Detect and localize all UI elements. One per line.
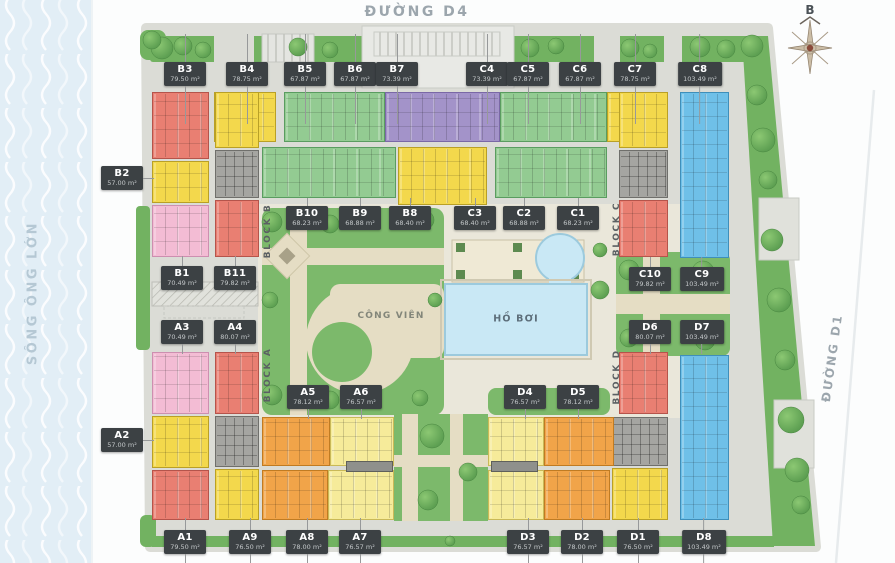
leader-line — [308, 409, 309, 419]
unit-area: 68.88 m² — [344, 219, 376, 227]
unit-code: C5 — [512, 64, 544, 75]
unit-area: 67.87 m² — [512, 75, 544, 83]
unit-code: B9 — [344, 208, 376, 219]
unit-label-c9[interactable]: C9103.49 m² — [680, 257, 724, 291]
unit-area: 70.49 m² — [166, 333, 198, 341]
unit-area: 80.07 m² — [219, 333, 251, 341]
leader-line — [361, 409, 362, 419]
leader-line — [355, 34, 356, 62]
unit-area: 68.88 m² — [508, 219, 540, 227]
leader-line — [700, 34, 701, 62]
leader-line — [247, 34, 248, 62]
unit-label-box: C1079.82 m² — [629, 267, 671, 291]
unit-label-b9[interactable]: B968.88 m² — [339, 198, 381, 230]
leader-line — [235, 256, 236, 266]
unit-label-b2[interactable]: B257.00 m² — [101, 166, 143, 190]
unit-label-box: A370.49 m² — [161, 320, 203, 344]
unit-code: B11 — [219, 268, 251, 279]
leader-line — [185, 518, 186, 530]
unit-label-d3[interactable]: D376.57 m² — [507, 518, 549, 563]
leader-line — [524, 198, 525, 206]
leader-line — [250, 518, 251, 530]
unit-area: 103.49 m² — [683, 75, 717, 83]
unit-label-b3[interactable]: B379.50 m² — [164, 34, 206, 124]
leader-line — [397, 86, 398, 124]
compass-north-label: B — [805, 4, 814, 16]
leader-line — [487, 34, 488, 62]
unit-area: 57.00 m² — [106, 179, 138, 187]
unit-code: B7 — [381, 64, 413, 75]
unit-area: 79.82 m² — [634, 280, 666, 288]
unit-label-box: D578.12 m² — [557, 385, 599, 409]
leader-line — [143, 440, 154, 441]
unit-code: A5 — [292, 387, 324, 398]
unit-label-c1[interactable]: C168.23 m² — [557, 198, 599, 230]
leader-line — [528, 518, 529, 530]
unit-label-d5[interactable]: D578.12 m² — [557, 385, 599, 419]
unit-code: B8 — [394, 208, 426, 219]
unit-code: B5 — [289, 64, 321, 75]
unit-code: D3 — [512, 532, 544, 543]
unit-code: C7 — [619, 64, 651, 75]
river-label: SÔNG ÔNG LỚN — [26, 221, 41, 365]
unit-area: 103.49 m² — [687, 543, 721, 551]
unit-label-d4[interactable]: D476.57 m² — [504, 385, 546, 419]
unit-label-box: B1068.23 m² — [286, 206, 328, 230]
leader-line — [704, 554, 705, 563]
unit-area: 76.57 m² — [509, 398, 541, 406]
leader-line — [410, 198, 411, 206]
unit-label-c10[interactable]: C1079.82 m² — [629, 257, 671, 291]
unit-code: D2 — [566, 532, 598, 543]
unit-label-d1[interactable]: D176.50 m² — [617, 518, 659, 563]
unit-area: 68.23 m² — [562, 219, 594, 227]
leader-line — [580, 86, 581, 124]
unit-label-box: B773.39 m² — [376, 62, 418, 86]
leader-line — [582, 518, 583, 530]
unit-label-box: B478.75 m² — [226, 62, 268, 86]
unit-area: 78.75 m² — [231, 75, 263, 83]
unit-area: 76.50 m² — [622, 543, 654, 551]
leader-line — [528, 86, 529, 124]
unit-label-d2[interactable]: D278.00 m² — [561, 518, 603, 563]
unit-code: D7 — [685, 322, 719, 333]
unit-label-box: B379.50 m² — [164, 62, 206, 86]
unit-label-c3[interactable]: C368.40 m² — [454, 198, 496, 230]
unit-area: 76.57 m² — [344, 543, 376, 551]
unit-label-box: D176.50 m² — [617, 530, 659, 554]
leader-line — [704, 518, 705, 530]
leader-line — [580, 34, 581, 62]
unit-area: 76.57 m² — [345, 398, 377, 406]
unit-area: 68.40 m² — [459, 219, 491, 227]
unit-label-box: B257.00 m² — [101, 166, 143, 190]
unit-code: D6 — [634, 322, 666, 333]
leader-line — [307, 198, 308, 206]
unit-code: B10 — [291, 208, 323, 219]
unit-area: 68.23 m² — [291, 219, 323, 227]
leader-line — [250, 554, 251, 563]
unit-label-box: B170.49 m² — [161, 266, 203, 290]
unit-area: 79.50 m² — [169, 75, 201, 83]
unit-label-box: D476.57 m² — [504, 385, 546, 409]
unit-code: A1 — [169, 532, 201, 543]
unit-label-b8[interactable]: B868.40 m² — [389, 198, 431, 230]
unit-label-box: C778.75 m² — [614, 62, 656, 86]
unit-label-a4[interactable]: A480.07 m² — [214, 320, 256, 354]
leader-line — [182, 344, 183, 354]
unit-area: 103.49 m² — [685, 333, 719, 341]
unit-area: 78.75 m² — [619, 75, 651, 83]
unit-code: A6 — [345, 387, 377, 398]
unit-label-a3[interactable]: A370.49 m² — [161, 320, 203, 354]
unit-label-box: C368.40 m² — [454, 206, 496, 230]
leader-line — [360, 554, 361, 563]
unit-label-box: D278.00 m² — [561, 530, 603, 554]
block-label-block-b: BLOCK B — [263, 204, 273, 259]
unit-code: A9 — [234, 532, 266, 543]
compass-icon — [784, 16, 836, 78]
unit-label-b1[interactable]: B170.49 m² — [161, 256, 203, 290]
unit-area: 79.50 m² — [169, 543, 201, 551]
leader-line — [307, 554, 308, 563]
unit-area: 103.49 m² — [685, 280, 719, 288]
unit-label-a5[interactable]: A578.12 m² — [287, 385, 329, 419]
unit-area: 68.40 m² — [394, 219, 426, 227]
unit-area: 80.07 m² — [634, 333, 666, 341]
block-label-block-a: BLOCK A — [263, 348, 273, 403]
leader-line — [635, 86, 636, 124]
unit-label-c2[interactable]: C268.88 m² — [503, 198, 545, 230]
unit-label-a7[interactable]: A776.57 m² — [339, 518, 381, 563]
unit-label-c4[interactable]: C473.39 m² — [466, 34, 508, 124]
unit-label-box: D8103.49 m² — [682, 530, 726, 554]
unit-label-c7[interactable]: C778.75 m² — [614, 34, 656, 124]
unit-label-box: C168.23 m² — [557, 206, 599, 230]
unit-label-d8[interactable]: D8103.49 m² — [682, 518, 726, 563]
leader-line — [487, 86, 488, 124]
unit-label-box: A776.57 m² — [339, 530, 381, 554]
unit-area: 78.00 m² — [291, 543, 323, 551]
unit-label-box: A976.50 m² — [229, 530, 271, 554]
unit-area: 67.87 m² — [564, 75, 596, 83]
leader-line — [650, 257, 651, 267]
unit-code: C3 — [459, 208, 491, 219]
unit-code: A3 — [166, 322, 198, 333]
unit-code: B4 — [231, 64, 263, 75]
unit-code: B6 — [339, 64, 371, 75]
leader-line — [525, 409, 526, 419]
unit-area: 57.00 m² — [106, 441, 138, 449]
unit-label-box: A257.00 m² — [101, 428, 143, 452]
unit-code: B2 — [106, 168, 138, 179]
leader-line — [305, 86, 306, 124]
unit-label-box: A179.50 m² — [164, 530, 206, 554]
unit-label-box: C473.39 m² — [466, 62, 508, 86]
unit-label-c6[interactable]: C667.87 m² — [559, 34, 601, 124]
unit-label-a9[interactable]: A976.50 m² — [229, 518, 271, 563]
unit-area: 73.39 m² — [381, 75, 413, 83]
unit-area: 76.50 m² — [234, 543, 266, 551]
unit-label-box: C8103.49 m² — [678, 62, 722, 86]
unit-label-box: D376.57 m² — [507, 530, 549, 554]
leader-line — [185, 86, 186, 124]
unit-label-box: B968.88 m² — [339, 206, 381, 230]
unit-code: C2 — [508, 208, 540, 219]
unit-label-d6[interactable]: D680.07 m² — [629, 320, 671, 354]
leader-line — [582, 554, 583, 563]
unit-label-box: A480.07 m² — [214, 320, 256, 344]
unit-label-a2[interactable]: A257.00 m² — [101, 428, 143, 452]
unit-code: A4 — [219, 322, 251, 333]
unit-code: A2 — [106, 430, 138, 441]
unit-label-box: D7103.49 m² — [680, 320, 724, 344]
unit-label-box: A676.57 m² — [340, 385, 382, 409]
unit-area: 78.12 m² — [292, 398, 324, 406]
unit-code: C6 — [564, 64, 596, 75]
unit-label-b10[interactable]: B1068.23 m² — [286, 198, 328, 230]
leader-line — [578, 409, 579, 419]
unit-code: D5 — [562, 387, 594, 398]
leader-line — [528, 554, 529, 563]
unit-label-box: A878.00 m² — [286, 530, 328, 554]
unit-label-box: B567.87 m² — [284, 62, 326, 86]
unit-label-box: C667.87 m² — [559, 62, 601, 86]
leader-line — [185, 554, 186, 563]
leader-line — [638, 518, 639, 530]
unit-label-box: B868.40 m² — [389, 206, 431, 230]
unit-label-d7[interactable]: D7103.49 m² — [680, 320, 724, 354]
leader-line — [528, 34, 529, 62]
unit-label-box: C268.88 m² — [503, 206, 545, 230]
unit-code: C9 — [685, 269, 719, 280]
pool-label: HỒ BƠI — [493, 314, 539, 325]
unit-label-box: B667.87 m² — [334, 62, 376, 86]
unit-label-b5[interactable]: B567.87 m² — [284, 34, 326, 124]
unit-label-a1[interactable]: A179.50 m² — [164, 518, 206, 563]
leader-line — [182, 256, 183, 266]
leader-line — [307, 518, 308, 530]
unit-code: A7 — [344, 532, 376, 543]
leader-line — [650, 344, 651, 354]
unit-code: C10 — [634, 269, 666, 280]
compass-rose: B — [782, 4, 838, 78]
unit-area: 76.57 m² — [512, 543, 544, 551]
leader-line — [360, 518, 361, 530]
leader-line — [143, 178, 154, 179]
unit-area: 67.87 m² — [289, 75, 321, 83]
unit-label-box: A578.12 m² — [287, 385, 329, 409]
leader-line — [360, 198, 361, 206]
leader-line — [578, 198, 579, 206]
unit-code: B1 — [166, 268, 198, 279]
leader-line — [475, 198, 476, 206]
unit-area: 78.12 m² — [562, 398, 594, 406]
unit-label-box: D680.07 m² — [629, 320, 671, 344]
unit-label-c8[interactable]: C8103.49 m² — [678, 34, 722, 124]
leader-line — [397, 34, 398, 62]
unit-code: B3 — [169, 64, 201, 75]
unit-label-a8[interactable]: A878.00 m² — [286, 518, 328, 563]
unit-label-a6[interactable]: A676.57 m² — [340, 385, 382, 419]
street-label-d1: ĐƯỜNG D1 — [819, 313, 845, 403]
leader-line — [700, 86, 701, 124]
leader-line — [638, 554, 639, 563]
unit-area: 73.39 m² — [471, 75, 503, 83]
unit-label-b4[interactable]: B478.75 m² — [226, 34, 268, 124]
leader-line — [235, 344, 236, 354]
unit-label-b7[interactable]: B773.39 m² — [376, 34, 418, 124]
unit-code: A8 — [291, 532, 323, 543]
unit-label-box: C9103.49 m² — [680, 267, 724, 291]
unit-area: 67.87 m² — [339, 75, 371, 83]
leader-line — [635, 34, 636, 62]
block-label-block-d: BLOCK D — [612, 349, 622, 404]
leader-line — [702, 344, 703, 354]
masterplan-canvas: ĐƯỜNG D4 ĐƯỜNG D1 SÔNG ÔNG LỚN CÔNG VIÊN… — [0, 0, 895, 563]
unit-code: C1 — [562, 208, 594, 219]
unit-code: C4 — [471, 64, 503, 75]
unit-code: D8 — [687, 532, 721, 543]
leader-line — [185, 34, 186, 62]
leader-line — [305, 34, 306, 62]
unit-label-b11[interactable]: B1179.82 m² — [214, 256, 256, 290]
labels-layer: ĐƯỜNG D4 ĐƯỜNG D1 SÔNG ÔNG LỚN CÔNG VIÊN… — [0, 0, 895, 563]
unit-label-box: C567.87 m² — [507, 62, 549, 86]
leader-line — [355, 86, 356, 124]
unit-area: 79.82 m² — [219, 279, 251, 287]
unit-code: D4 — [509, 387, 541, 398]
unit-label-box: B1179.82 m² — [214, 266, 256, 290]
street-label-d4: ĐƯỜNG D4 — [364, 4, 469, 20]
block-label-block-c: BLOCK C — [612, 202, 622, 256]
park-label: CÔNG VIÊN — [357, 311, 424, 321]
unit-code: D1 — [622, 532, 654, 543]
unit-code: C8 — [683, 64, 717, 75]
leader-line — [247, 86, 248, 124]
unit-label-b6[interactable]: B667.87 m² — [334, 34, 376, 124]
leader-line — [702, 257, 703, 267]
unit-label-c5[interactable]: C567.87 m² — [507, 34, 549, 124]
unit-area: 78.00 m² — [566, 543, 598, 551]
unit-area: 70.49 m² — [166, 279, 198, 287]
